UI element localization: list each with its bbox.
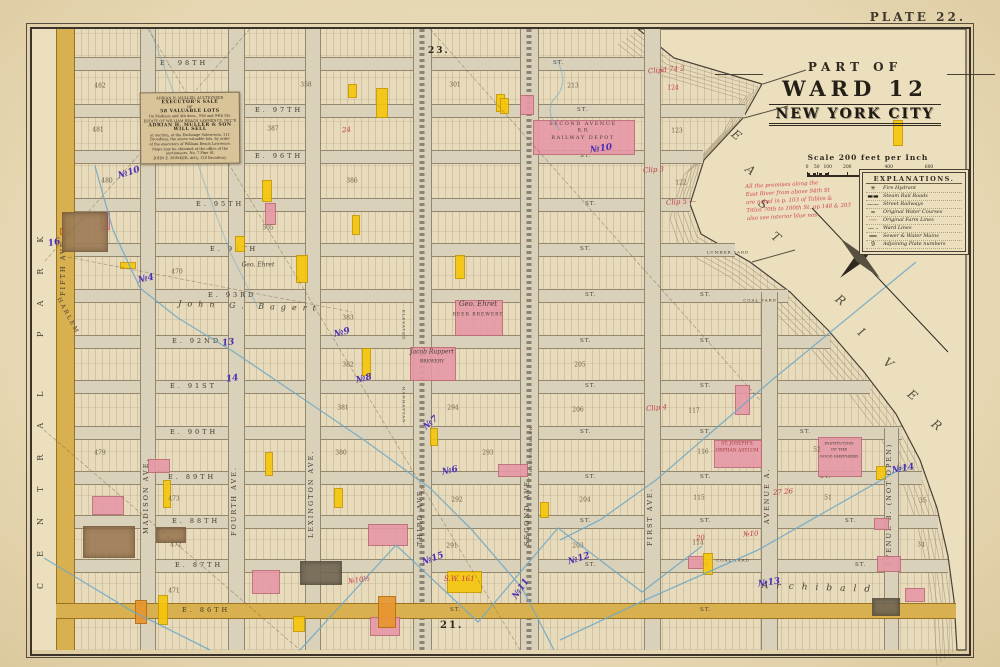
legend-symbol-icon: ▬▬ <box>866 193 880 200</box>
auction-notice-paste: ADRIAN H. MULLER, AUCTIONEEREXECUTOR'S S… <box>140 92 241 165</box>
scale-tick-label: 0 <box>806 165 809 170</box>
handwritten-red-mark: 24 <box>342 126 352 135</box>
handwritten-purple-note: №11 <box>511 577 532 601</box>
legend-row: — -Ward Lines <box>866 225 962 233</box>
handwritten-purple-note: №7 <box>422 414 441 432</box>
handwritten-red-mark: Clip 3 <box>643 165 664 174</box>
legend-row: 9Adjoining Plate numbers <box>866 241 962 249</box>
east-river-label: R <box>929 417 945 434</box>
handwritten-purple-note: 13 <box>221 337 235 349</box>
east-river-label: E <box>729 127 745 143</box>
handwritten-purple-note: №14 <box>891 462 915 476</box>
title-cartouche: PART OF WARD 12 NEW YORK CITY <box>755 52 955 152</box>
title-part-of: PART OF <box>755 60 955 74</box>
legend-row: ✳Fire Hydrant <box>866 185 962 193</box>
scale-tick <box>807 172 808 176</box>
handwritten-purple-note: №10 <box>589 142 612 155</box>
legend-symbol-icon: —— <box>866 201 880 208</box>
east-river-label: T <box>769 229 784 245</box>
handwritten-purple-note: 16 <box>47 237 61 249</box>
east-river-label: A <box>743 162 758 178</box>
handwritten-purple-note: №4 <box>137 272 155 285</box>
handwritten-red-note: All the premises along theEast River fro… <box>745 177 865 223</box>
legend-label: Fire Hydrant <box>883 185 916 192</box>
handwritten-purple-note: №15 <box>421 550 445 567</box>
title-ward: WARD 12 <box>755 76 955 101</box>
scale-title: Scale 200 feet per Inch <box>793 153 943 162</box>
plate-number: PLATE 22. <box>870 10 966 24</box>
handwritten-red-mark: №10 <box>743 529 759 538</box>
legend-symbol-icon: 9 <box>866 241 880 248</box>
legend-symbol-icon: — - <box>866 225 880 232</box>
handwritten-red-mark: Clipd 74 2 <box>648 65 685 76</box>
east-river-label: E <box>905 387 921 403</box>
auction-notice-line: JOHN E. BOWKER, Att'y, 120 Broadway. <box>143 155 237 160</box>
flourish-left <box>715 74 763 75</box>
scale-tick <box>828 172 829 176</box>
handwritten-purple-note: №6 <box>441 464 459 477</box>
legend-label: Original Water Courses <box>883 209 942 216</box>
handwritten-purple-note: №13 <box>757 576 780 589</box>
legend-label: Street Railways <box>883 201 923 208</box>
east-river-label: R <box>833 292 849 309</box>
legend-row: ——Street Railways <box>866 201 962 209</box>
legend-row: ▬▬Steam Rail Roads <box>866 193 962 201</box>
legend-label: Adjoining Plate numbers <box>883 241 946 248</box>
scale-tick-label: 100 <box>823 165 832 170</box>
legend-label: Steam Rail Roads <box>883 193 928 200</box>
legend-label: Sewer & Water Mains <box>883 233 939 240</box>
handwritten-red-mark: 27 26 <box>773 487 794 497</box>
handwritten-red-mark: №10½ <box>348 574 371 585</box>
handwritten-purple-note: №12 <box>567 551 591 567</box>
handwritten-red-mark: Clip 4 <box>646 403 668 413</box>
atlas-page: PLATE 22. CENTRAL PARK E. 98THST.E. 97TH… <box>0 0 1000 667</box>
legend-box: EXPLANATIONS. ✳Fire Hydrant▬▬Steam Rail … <box>862 172 966 252</box>
scale-tick-label: 50 <box>814 165 820 170</box>
scale-tick <box>817 172 818 176</box>
legend-label: Original Farm Lines <box>883 217 934 224</box>
legend-row: ≈Original Water Courses <box>866 209 962 217</box>
handwritten-red-mark: Clip 5 — <box>666 197 697 207</box>
scale-tick <box>847 172 848 176</box>
legend-symbol-icon: ≈ <box>866 209 880 216</box>
legend-symbol-icon: ══ <box>866 233 880 240</box>
flourish-right <box>947 74 995 75</box>
legend-symbol-icon: ✳ <box>866 185 880 192</box>
legend-label: Ward Lines <box>883 225 912 232</box>
east-river-label: I <box>855 325 867 339</box>
scale-tick-label: 200 <box>843 165 852 170</box>
legend-row: ══Sewer & Water Mains <box>866 233 962 241</box>
scale-tick-label: 600 <box>925 165 934 170</box>
handwritten-red-mark: S.W. 161 <box>444 575 475 583</box>
handwritten-purple-note: 14 <box>225 373 239 385</box>
east-river-label: V <box>881 355 896 371</box>
handwritten-red-mark: 20 <box>696 534 706 543</box>
legend-row: ┈┈Original Farm Lines <box>866 217 962 225</box>
adjoining-plate-bottom: 21. <box>440 620 463 631</box>
scale-tick-label: 400 <box>884 165 893 170</box>
title-city: NEW YORK CITY <box>769 104 940 126</box>
legend-title: EXPLANATIONS. <box>866 175 962 184</box>
handwritten-purple-note: №8 <box>355 372 373 386</box>
adjoining-plate-top: 23. <box>428 46 450 56</box>
handwritten-purple-note: №9 <box>333 326 351 340</box>
handwritten-purple-note: №10 <box>117 165 141 181</box>
legend-symbol-icon: ┈┈ <box>866 217 880 224</box>
